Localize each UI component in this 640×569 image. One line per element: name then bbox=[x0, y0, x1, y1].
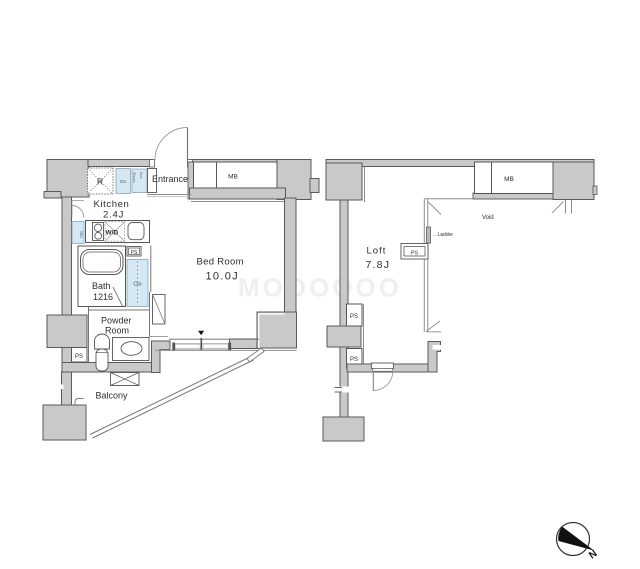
svg-text:7.8J: 7.8J bbox=[366, 259, 391, 271]
svg-text:PS: PS bbox=[75, 354, 83, 360]
svg-text:MOOOOOO: MOOOOOO bbox=[238, 273, 402, 303]
svg-text:←Ladder: ←Ladder bbox=[433, 232, 454, 238]
svg-text:Sto: Sto bbox=[79, 231, 84, 238]
svg-text:Void: Void bbox=[482, 215, 494, 221]
svg-text:Balcony: Balcony bbox=[96, 391, 129, 401]
svg-text:W/D: W/D bbox=[106, 230, 119, 237]
svg-text:1216: 1216 bbox=[93, 292, 113, 302]
svg-text:Shoes: Shoes bbox=[132, 172, 136, 183]
svg-text:Box: Box bbox=[139, 172, 143, 179]
svg-text:PS: PS bbox=[350, 357, 358, 363]
svg-text:PS: PS bbox=[411, 251, 419, 257]
svg-text:Room: Room bbox=[105, 326, 129, 336]
svg-text:Powder: Powder bbox=[101, 316, 132, 326]
svg-text:Sto: Sto bbox=[120, 179, 127, 184]
svg-text:Bed Room: Bed Room bbox=[197, 257, 244, 268]
svg-text:Entrance: Entrance bbox=[152, 174, 188, 184]
svg-text:10.0J: 10.0J bbox=[206, 271, 239, 283]
svg-text:Kitchen: Kitchen bbox=[94, 199, 130, 210]
svg-text:MB: MB bbox=[228, 174, 238, 181]
svg-text:Bath: Bath bbox=[92, 281, 111, 291]
svg-text:Clo: Clo bbox=[133, 282, 141, 288]
svg-text:R: R bbox=[97, 177, 103, 187]
svg-text:MB: MB bbox=[504, 176, 514, 183]
svg-text:2.4J: 2.4J bbox=[103, 210, 124, 221]
svg-text:PS: PS bbox=[131, 250, 138, 256]
svg-text:Loft: Loft bbox=[367, 246, 387, 257]
svg-text:PS: PS bbox=[350, 314, 358, 320]
